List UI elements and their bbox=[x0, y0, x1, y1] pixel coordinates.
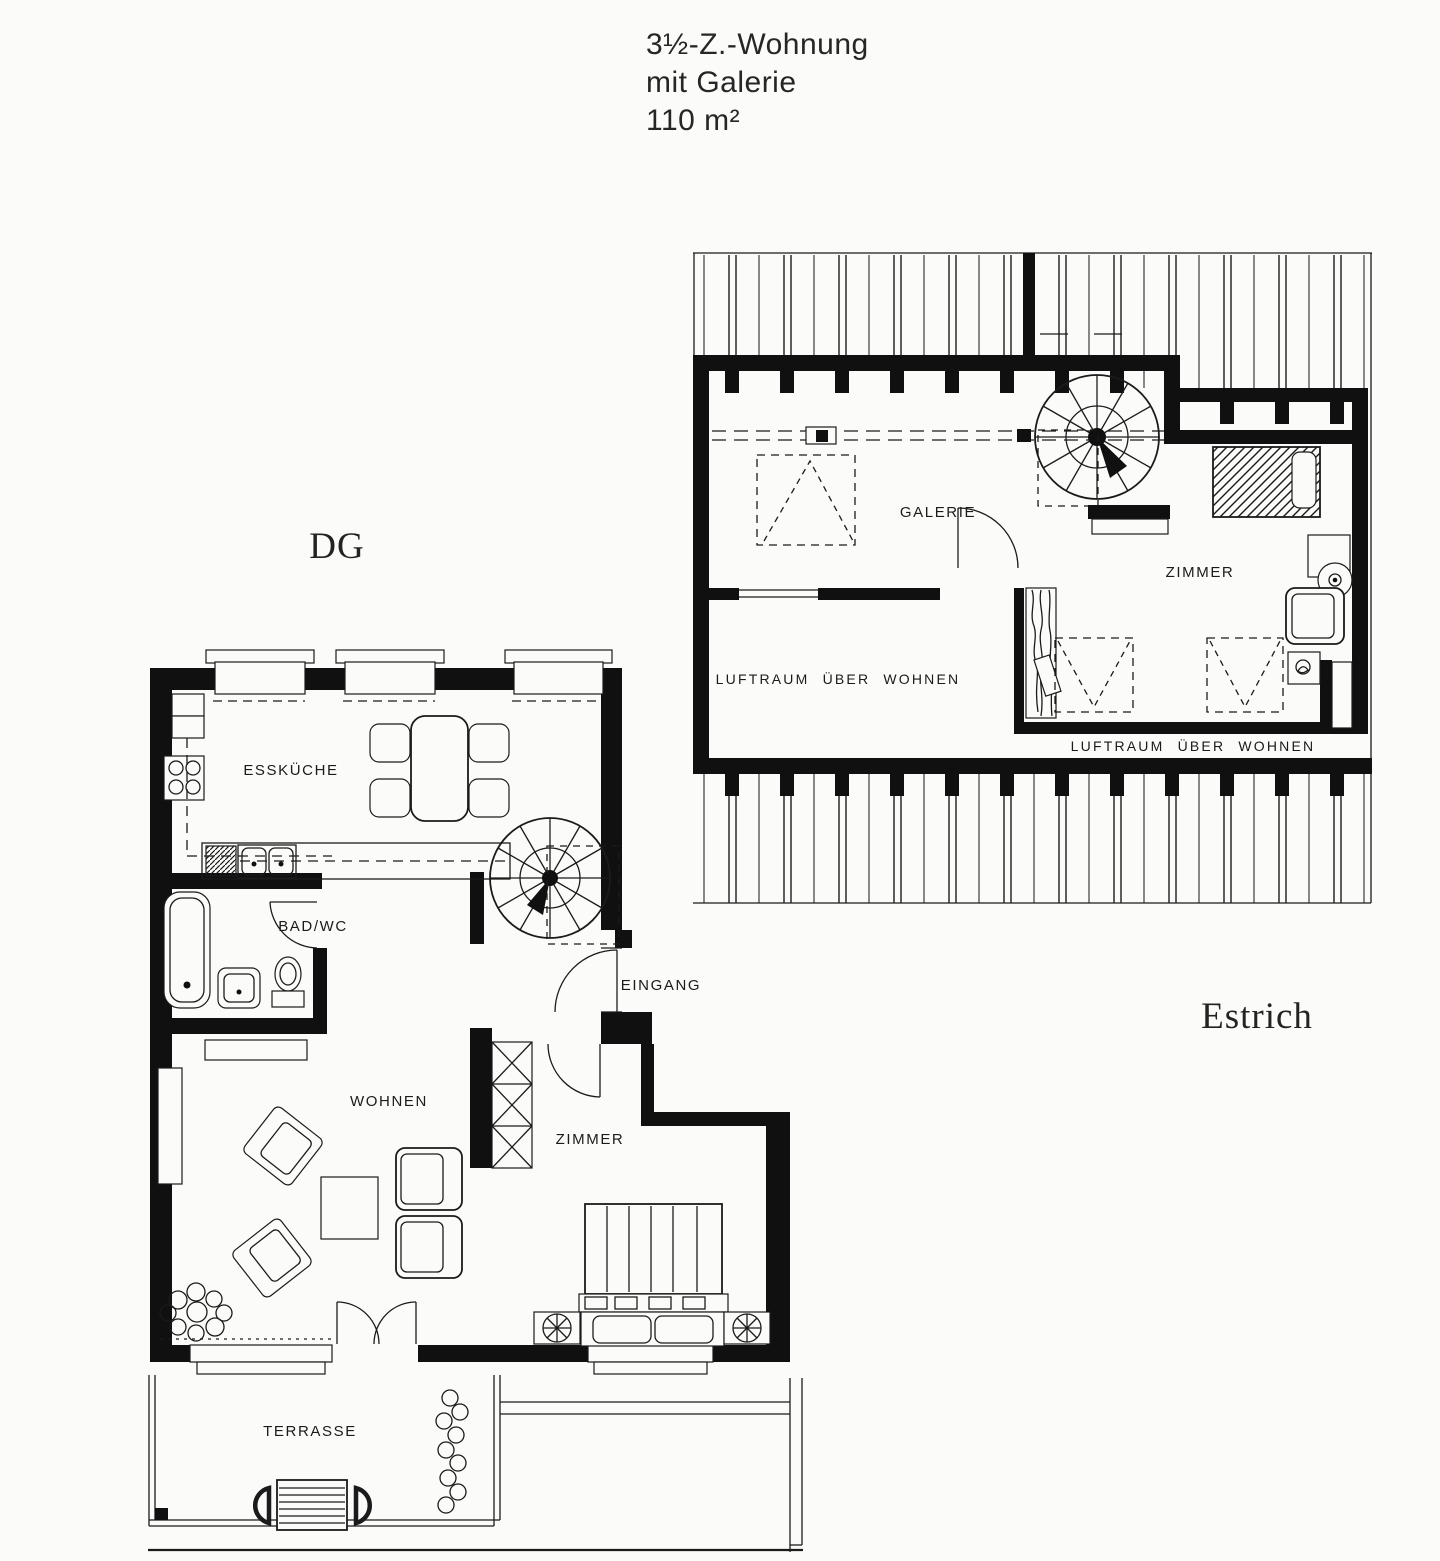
zimmer-top-wall bbox=[1168, 430, 1368, 444]
dg-zimmer-label: ZIMMER bbox=[556, 1131, 625, 1148]
bad-wc-label: BAD/WC bbox=[278, 918, 348, 935]
terrasse-label: TERRASSE bbox=[263, 1423, 357, 1440]
title-line-3: 110 m² bbox=[646, 102, 869, 140]
armchair-2 bbox=[231, 1217, 314, 1300]
estrich-right-wall bbox=[1352, 402, 1368, 734]
zimmer-door bbox=[548, 1044, 600, 1097]
sofa-2 bbox=[396, 1216, 462, 1278]
dining-chair bbox=[469, 724, 509, 762]
bathtub bbox=[164, 892, 210, 1008]
esskueche-label: ESSKÜCHE bbox=[243, 761, 338, 779]
roof-divider-wall bbox=[1023, 253, 1035, 357]
terrace: TERRASSE bbox=[149, 1375, 500, 1530]
plant-table bbox=[1288, 652, 1320, 684]
dining-chair bbox=[370, 724, 410, 762]
armchair-1 bbox=[242, 1105, 325, 1188]
toilet bbox=[272, 957, 304, 1007]
terrace-chair-left bbox=[255, 1488, 269, 1523]
zimmer-skylight-2 bbox=[1207, 638, 1283, 712]
french-doors bbox=[337, 1302, 416, 1344]
nightstand-right bbox=[724, 1312, 770, 1344]
estrich-floor-label: Estrich bbox=[1201, 996, 1313, 1037]
dining-chair bbox=[469, 779, 509, 817]
luftraum-left-label: LUFTRAUM ÜBER WOHNEN bbox=[716, 670, 961, 687]
eingang-label: EINGANG bbox=[621, 977, 701, 994]
chimney bbox=[1014, 588, 1061, 734]
dishwasher bbox=[206, 846, 236, 876]
estrich-bed bbox=[1213, 447, 1320, 517]
terrace-chair-right bbox=[356, 1488, 370, 1523]
galerie-label: GALERIE bbox=[900, 504, 976, 521]
floorplan-drawing: DG Estrich bbox=[0, 0, 1440, 1561]
dg-spiral-staircase bbox=[490, 818, 619, 944]
title-line-2: mit Galerie bbox=[646, 64, 869, 102]
kitchen-cupboard bbox=[172, 716, 204, 738]
estrich-zimmer-label: ZIMMER bbox=[1166, 564, 1235, 581]
kitchen-stove bbox=[164, 756, 204, 800]
hedge bbox=[436, 1390, 468, 1513]
dg-floor-label: DG bbox=[309, 526, 364, 567]
dg-top-windows bbox=[206, 650, 612, 701]
luftraum-right-label: LUFTRAUM ÜBER WOHNEN bbox=[1071, 737, 1316, 754]
floorplan-page: 3½-Z.-Wohnung mit Galerie 110 m² DG bbox=[0, 0, 1440, 1561]
terrace-table bbox=[277, 1480, 347, 1530]
zimmer-skylight-1 bbox=[1055, 638, 1133, 712]
dining-table bbox=[411, 716, 468, 821]
coffee-table bbox=[321, 1177, 378, 1239]
dining-group bbox=[370, 716, 509, 821]
washbasin bbox=[218, 968, 260, 1008]
estrich-sofa bbox=[1286, 588, 1344, 644]
kitchen-cupboard bbox=[172, 694, 204, 716]
dg-zimmer: ZIMMER bbox=[534, 1131, 770, 1346]
estrich-left-wall bbox=[693, 355, 709, 772]
sideboard bbox=[205, 1040, 307, 1060]
wohnen-label: WOHNEN bbox=[350, 1093, 428, 1110]
wall-shelf bbox=[158, 1068, 182, 1184]
entrance: EINGANG bbox=[555, 948, 701, 1012]
entrance-door-swing bbox=[555, 950, 617, 1012]
estrich-plan: GALERIE bbox=[693, 253, 1372, 903]
zimmer-bottom-wall bbox=[1016, 722, 1368, 734]
living-room: WOHNEN bbox=[158, 1040, 462, 1341]
nightstand-left bbox=[534, 1312, 580, 1344]
plan-title: 3½-Z.-Wohnung mit Galerie 110 m² bbox=[646, 26, 869, 140]
galerie-skylight bbox=[757, 455, 855, 545]
sofa-1 bbox=[396, 1148, 462, 1210]
zimmer-door-niche bbox=[1332, 662, 1352, 728]
estrich-zimmer: ZIMMER bbox=[1016, 430, 1368, 734]
stair-railing bbox=[1092, 519, 1168, 534]
galerie-edge-wall bbox=[695, 588, 940, 600]
wardrobe bbox=[492, 1042, 532, 1168]
dining-chair bbox=[370, 779, 410, 817]
title-line-1: 3½-Z.-Wohnung bbox=[646, 26, 869, 64]
bed bbox=[579, 1204, 728, 1346]
